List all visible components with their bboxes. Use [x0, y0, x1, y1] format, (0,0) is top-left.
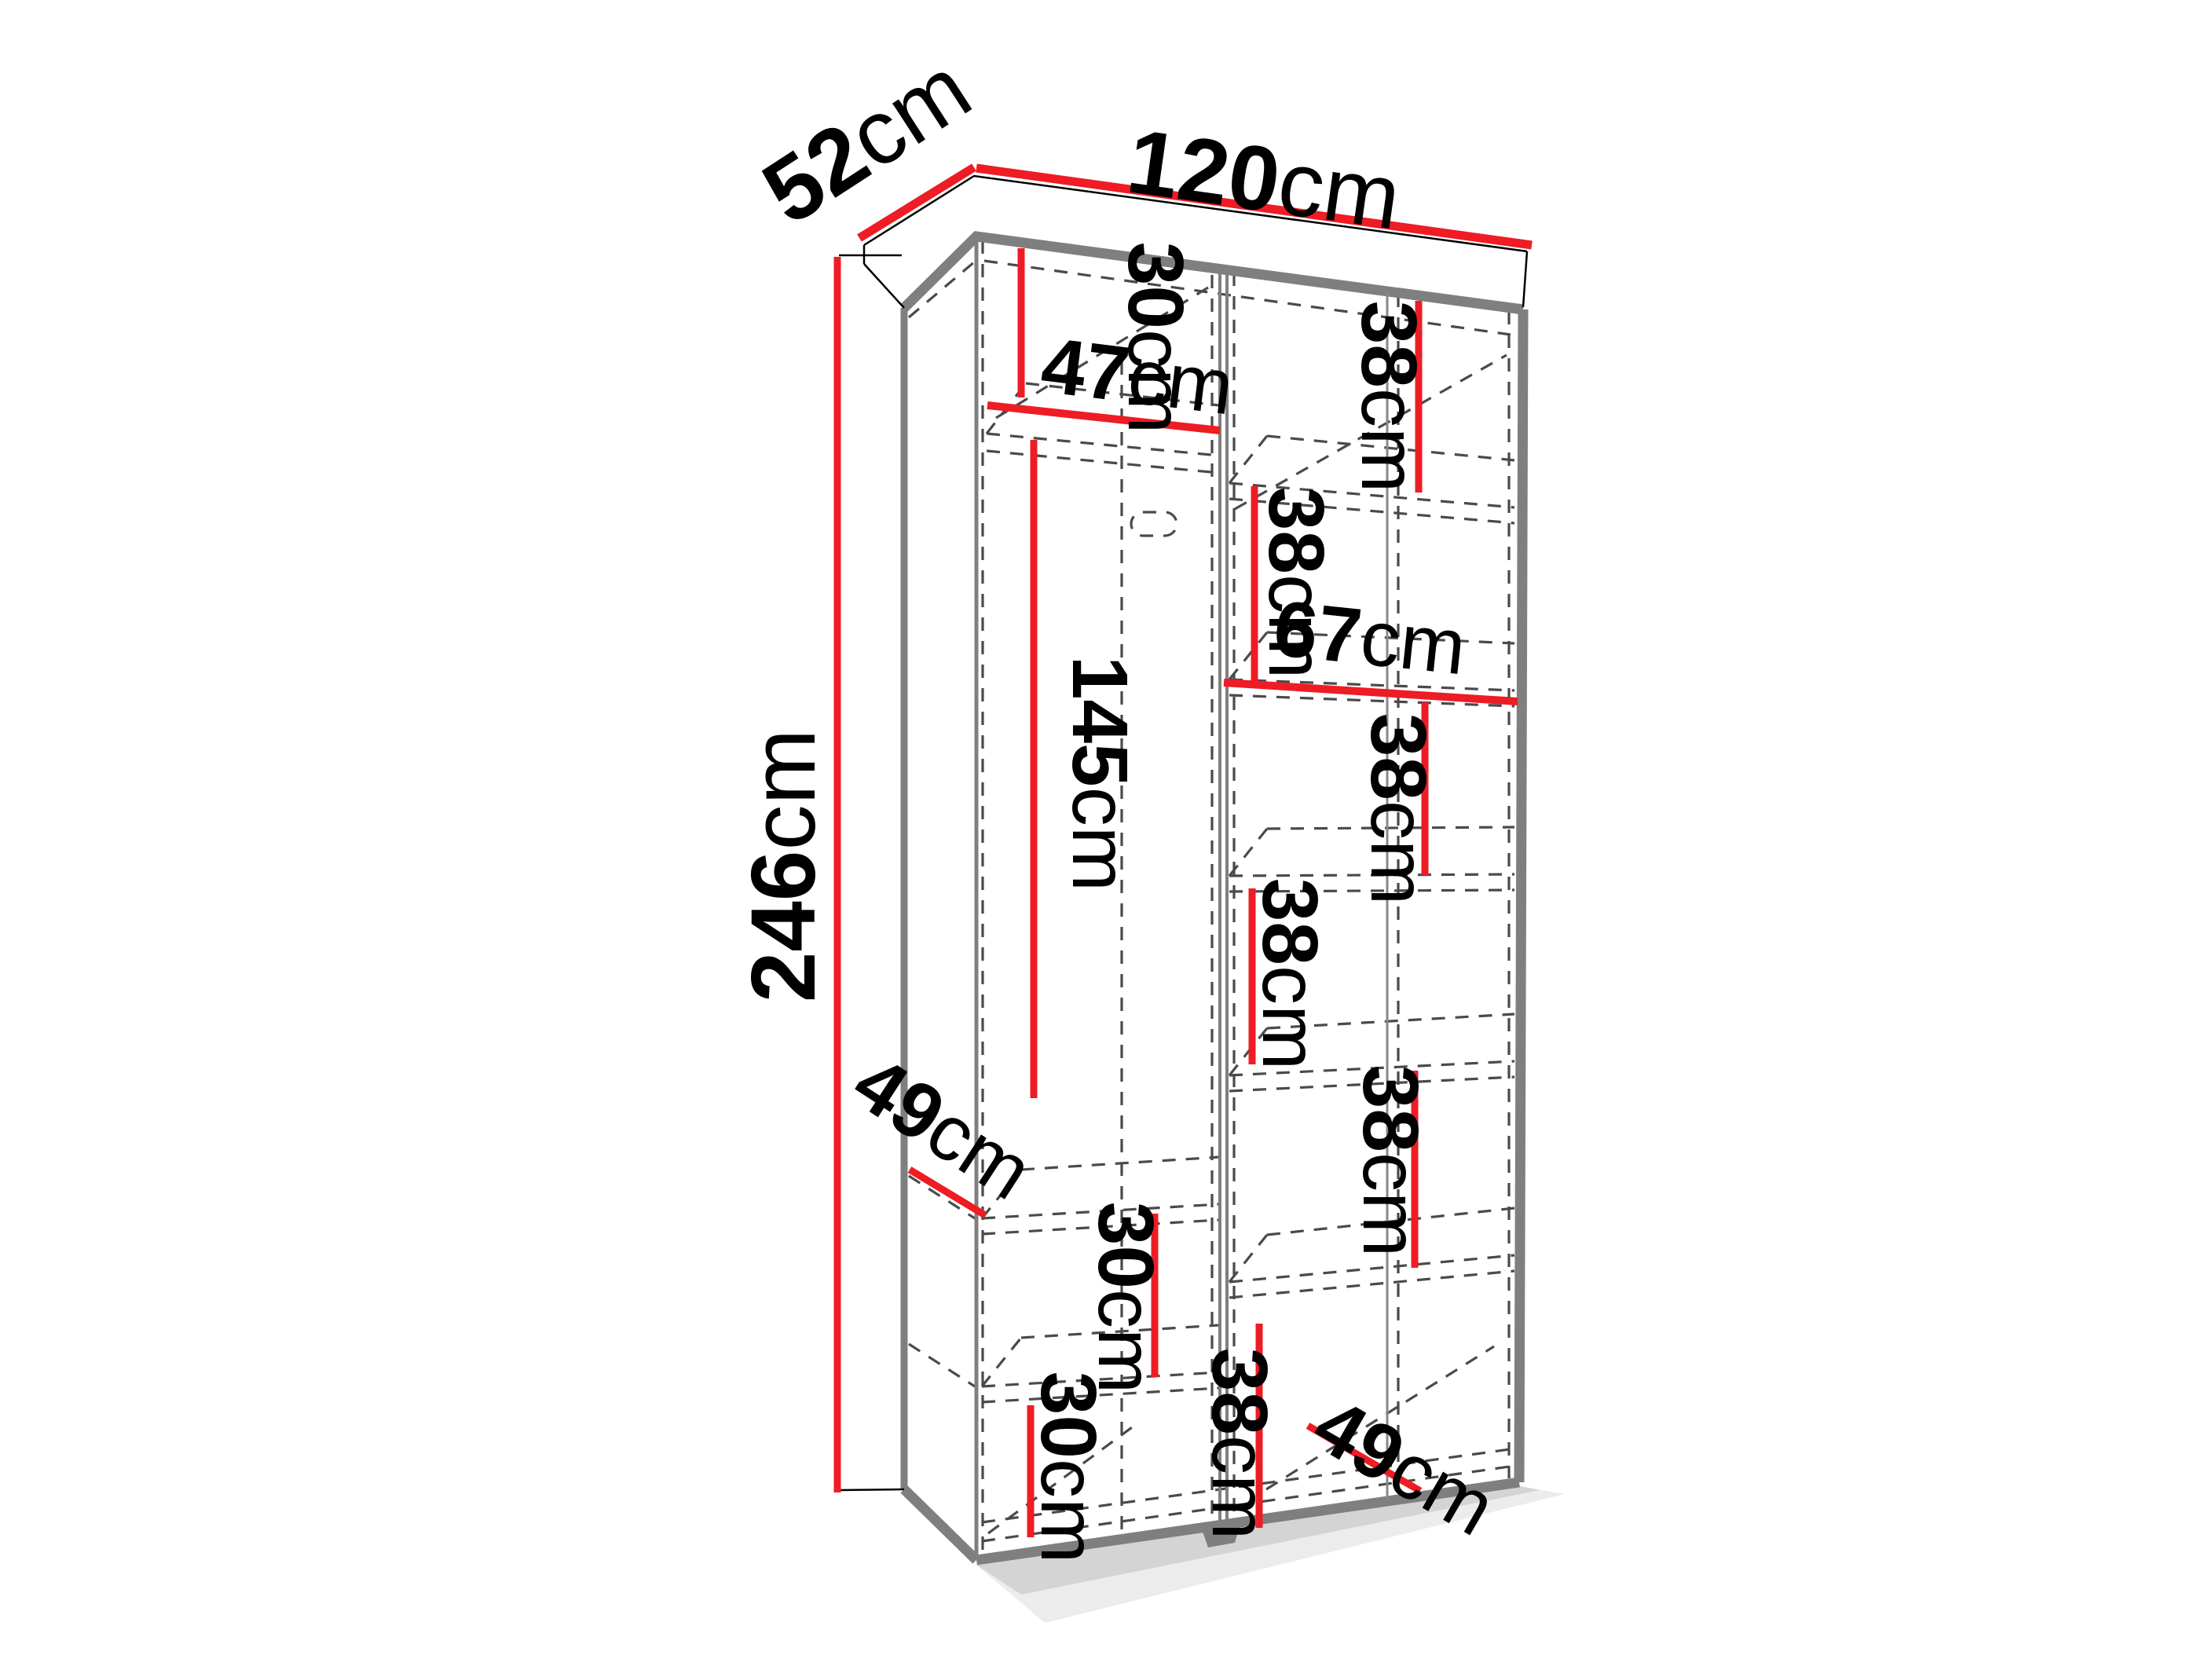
- label-height-246: 246cm: [732, 729, 834, 1002]
- label-low-shelf-a-30: 30cm: [1082, 1202, 1170, 1394]
- label-low-shelf-b-30: 30cm: [1024, 1372, 1112, 1564]
- label-right-s1-38: 38cm: [1345, 301, 1433, 493]
- wardrobe-dimension-diagram: 52cm 120cm 246cm 30cm 47cm 145cm 49cm 30…: [0, 0, 2212, 1659]
- diagram-canvas: 52cm 120cm 246cm 30cm 47cm 145cm 49cm 30…: [0, 0, 2212, 1659]
- height-extension-bottom: [839, 1489, 904, 1490]
- label-right-s3-38: 38cm: [1354, 713, 1442, 906]
- front-right-edge: [1519, 309, 1523, 1482]
- label-right-s4-38: 38cm: [1246, 878, 1334, 1071]
- label-right-s5-38: 38cm: [1346, 1065, 1434, 1258]
- label-right-s6-38: 38cm: [1196, 1348, 1284, 1540]
- label-hanging-145: 145cm: [1056, 656, 1144, 892]
